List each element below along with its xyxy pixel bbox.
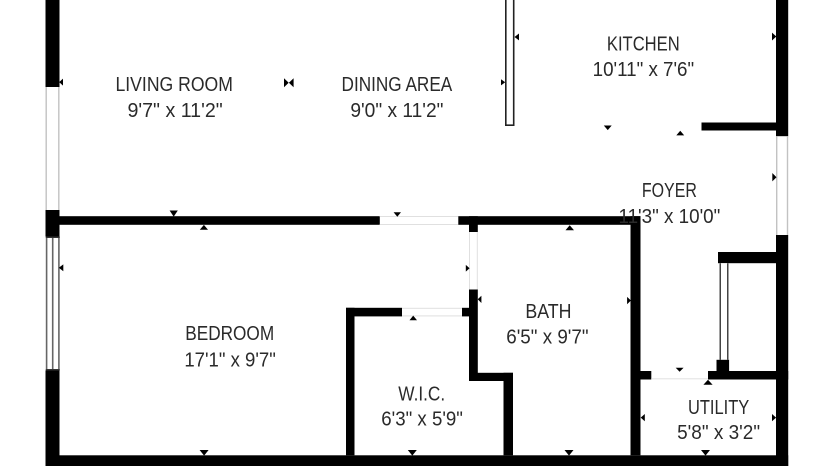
svg-text:DINING AREA: DINING AREA	[342, 74, 453, 96]
svg-text:BEDROOM: BEDROOM	[185, 323, 274, 345]
svg-text:FOYER: FOYER	[642, 180, 697, 202]
svg-text:W.I.C.: W.I.C.	[398, 384, 445, 406]
svg-text:17'1" x 9'7": 17'1" x 9'7"	[184, 349, 276, 371]
svg-text:9'7" x 11'2": 9'7" x 11'2"	[128, 100, 223, 122]
svg-text:BATH: BATH	[525, 301, 571, 323]
svg-text:6'3" x 5'9": 6'3" x 5'9"	[381, 409, 463, 431]
svg-text:10'11" x 7'6": 10'11" x 7'6"	[593, 59, 695, 81]
svg-text:KITCHEN: KITCHEN	[607, 34, 680, 56]
svg-text:6'5" x 9'7": 6'5" x 9'7"	[506, 326, 588, 348]
svg-text:11'3" x 10'0": 11'3" x 10'0"	[619, 206, 721, 228]
svg-text:5'8" x 3'2": 5'8" x 3'2"	[677, 422, 760, 444]
svg-text:LIVING ROOM: LIVING ROOM	[116, 74, 233, 96]
svg-text:9'0" x 11'2": 9'0" x 11'2"	[350, 100, 443, 122]
svg-text:UTILITY: UTILITY	[688, 397, 749, 419]
